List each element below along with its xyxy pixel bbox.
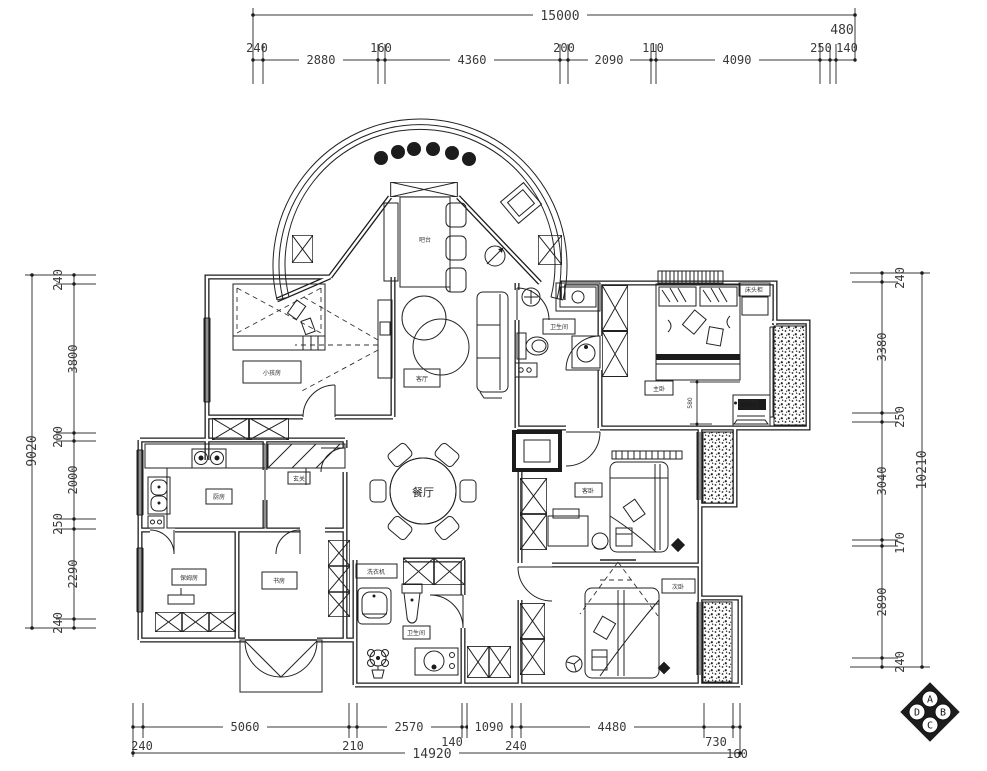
- label-maid-room: 保姆房: [180, 574, 198, 582]
- floor-plan-drawing: 15000 480 240 2880 160 4360 200 2090 110: [0, 0, 987, 767]
- dim-left-240a: 240: [51, 269, 65, 291]
- dim-left-2000: 2000: [66, 466, 80, 495]
- dim-top-overall: 15000: [540, 9, 579, 24]
- compass-a: A: [927, 695, 933, 706]
- compass-c: C: [927, 721, 933, 732]
- dim-right-240b: 240: [893, 651, 907, 673]
- dim-top-2880: 2880: [307, 53, 336, 67]
- dim-right-250: 250: [893, 406, 907, 428]
- dim-left-3800: 3800: [66, 345, 80, 374]
- dim-bottom-4480: 4480: [598, 720, 627, 734]
- compass-b: B: [940, 708, 946, 719]
- label-bar: 吧台: [419, 236, 431, 244]
- label-laundry: 洗衣机: [367, 568, 385, 576]
- balcony-bottom: [703, 602, 732, 682]
- floor-plan-page: 15000 480 240 2880 160 4360 200 2090 110: [0, 0, 987, 767]
- shaft: [514, 432, 560, 470]
- dim-bottom-240a: 240: [131, 739, 153, 753]
- dim-bottom-240b: 240: [505, 739, 527, 753]
- label-kitchen: 厨房: [213, 493, 225, 501]
- dim-top-240: 240: [246, 41, 268, 55]
- dim-bottom-210: 210: [342, 739, 364, 753]
- label-study: 书房: [273, 577, 285, 585]
- label-hallway: 玄关: [293, 475, 305, 483]
- dim-bottom-overall: 14920: [412, 747, 451, 762]
- label-bedroom-left: 小孩房: [263, 369, 281, 377]
- label-living: 客厅: [416, 375, 428, 383]
- dim-right-3380: 3380: [875, 333, 889, 362]
- dim-top-4090: 4090: [723, 53, 752, 67]
- dim-top-2090: 2090: [595, 53, 624, 67]
- dim-580: 580: [687, 397, 694, 409]
- label-master: 主卧: [653, 385, 665, 393]
- dim-bottom-2570: 2570: [395, 720, 424, 734]
- label-bedroom-bottom: 次卧: [672, 583, 684, 591]
- dim-bottom-5060: 5060: [231, 720, 260, 734]
- dim-top-160: 160: [370, 41, 392, 55]
- dim-bottom-160: 160: [726, 747, 748, 761]
- dim-top-4360: 4360: [458, 53, 487, 67]
- label-dining: 餐厅: [412, 485, 434, 499]
- dim-bottom-1090: 1090: [475, 720, 504, 734]
- label-nightstand: 床头柜: [745, 286, 763, 294]
- dim-right-2890: 2890: [875, 588, 889, 617]
- dim-left-250: 250: [51, 513, 65, 535]
- dim-top-110: 110: [642, 41, 664, 55]
- dim-top-140: 140: [836, 41, 858, 55]
- dim-left-overall: 9020: [25, 435, 40, 466]
- dim-top-overhang: 480: [830, 23, 853, 38]
- dim-top-200: 200: [553, 41, 575, 55]
- dim-bottom-730: 730: [705, 735, 727, 749]
- dim-left-200: 200: [51, 426, 65, 448]
- dim-right-170: 170: [893, 532, 907, 554]
- balcony-mid: [703, 432, 733, 503]
- dim-left-2290: 2290: [66, 560, 80, 589]
- dim-left-240b: 240: [51, 612, 65, 634]
- dim-right-240a: 240: [893, 267, 907, 289]
- dim-right-3040: 3040: [875, 467, 889, 496]
- compass-d: D: [914, 708, 920, 719]
- dim-top-250: 250: [810, 41, 832, 55]
- balcony-master: [774, 326, 806, 425]
- label-bedroom-mid: 客卧: [582, 487, 594, 495]
- dim-right-overall: 10210: [915, 450, 930, 489]
- label-bath-main: 卫生间: [407, 629, 425, 637]
- label-bath-master: 卫生间: [550, 323, 568, 331]
